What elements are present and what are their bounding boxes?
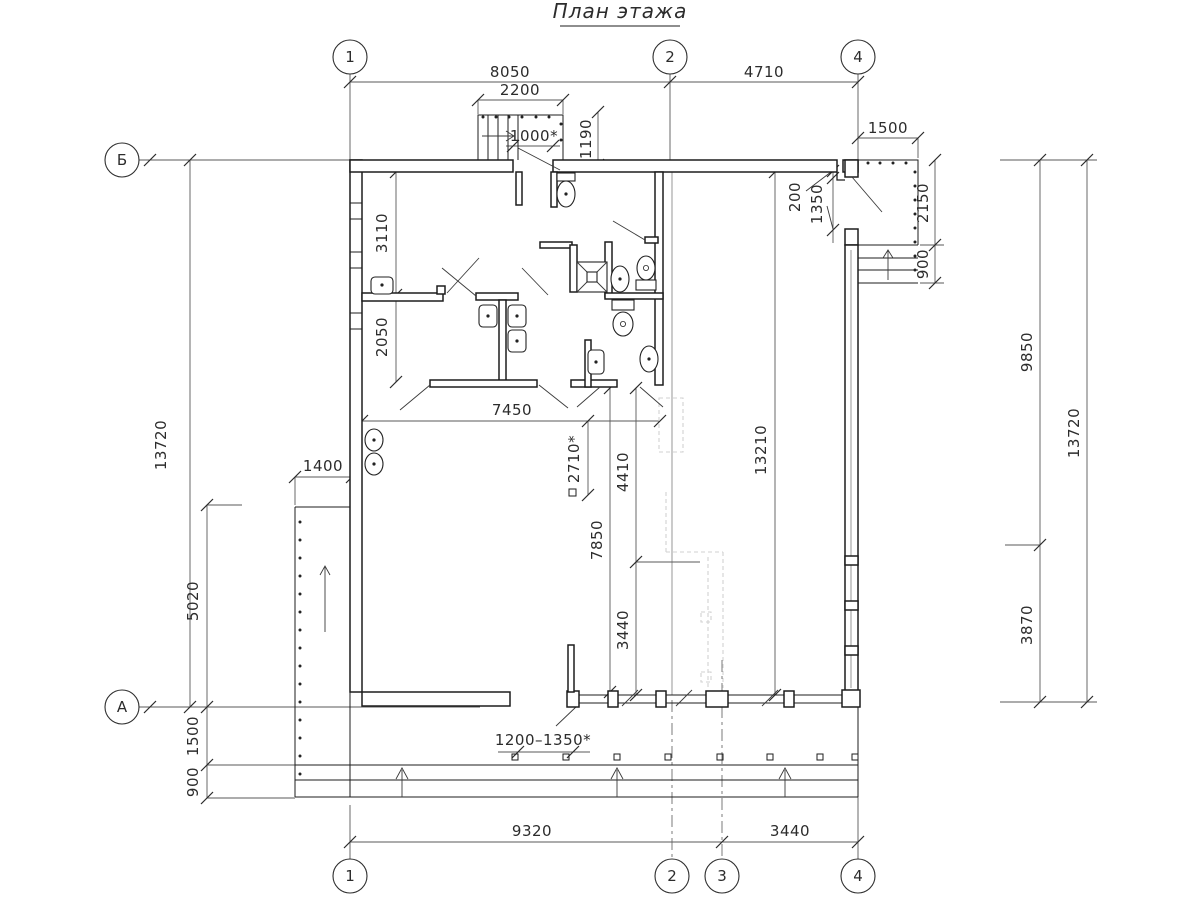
walls xyxy=(350,160,860,707)
dim-1190: 1190 xyxy=(577,119,595,159)
page-title: План этажа xyxy=(553,0,688,23)
dim-5020: 5020 xyxy=(184,581,202,621)
drawing-sheet: План этажа 8050 4710 2200 1000* 1190 150… xyxy=(0,0,1200,900)
right-wall-top xyxy=(845,160,858,177)
axis-label: 1 xyxy=(345,48,355,66)
dim-200: 200 xyxy=(786,182,804,212)
sink-symbol xyxy=(371,277,393,294)
dim-3870: 3870 xyxy=(1018,605,1036,645)
axis-label: 2 xyxy=(667,867,677,885)
dim-3110: 3110 xyxy=(373,213,391,253)
axis-bubble-top-1: 1 xyxy=(333,40,367,74)
fixtures xyxy=(365,173,658,475)
dim-1350: 1350 xyxy=(808,184,826,224)
dim-13720-right: 13720 xyxy=(1065,408,1083,458)
dim-9320: 9320 xyxy=(512,822,552,840)
dim-3440-int: 3440 xyxy=(614,610,632,650)
dim-2050: 2050 xyxy=(373,317,391,357)
axis-bubble-top-2: 2 xyxy=(653,40,687,74)
toilet-symbol xyxy=(557,173,575,207)
dim-7450: 7450 xyxy=(492,401,532,419)
dim-2150: 2150 xyxy=(914,183,932,223)
axis-label: 2 xyxy=(665,48,675,66)
axis-label: А xyxy=(117,698,128,716)
axis-bubble-bottom-3: 3 xyxy=(705,859,739,893)
dim-13720-left: 13720 xyxy=(152,420,170,470)
dim-3440-bottom: 3440 xyxy=(770,822,810,840)
axis-label: 3 xyxy=(717,867,727,885)
dim-4710: 4710 xyxy=(744,63,784,81)
bottom-wall-left xyxy=(362,692,510,706)
sink-symbol xyxy=(640,346,658,372)
dim-900-left: 900 xyxy=(184,767,202,797)
dim-2710: 2710* xyxy=(565,435,583,483)
stair-direction-arrow xyxy=(883,250,893,280)
axis-bubble-bottom-4: 4 xyxy=(841,859,875,893)
axis-label: Б xyxy=(117,151,127,169)
toilet-symbol xyxy=(636,256,656,290)
terrace-posts xyxy=(512,754,858,760)
top-wall-right xyxy=(553,160,837,172)
dim-2200: 2200 xyxy=(500,81,540,99)
shower-symbol xyxy=(577,262,607,292)
stair-direction-arrow xyxy=(396,768,791,797)
side-porch xyxy=(858,160,918,283)
dim-900-right: 900 xyxy=(914,249,932,279)
dim-1000: 1000* xyxy=(510,127,558,145)
sink-symbol xyxy=(479,305,497,327)
axis-label: 1 xyxy=(345,867,355,885)
dim-1500-left: 1500 xyxy=(184,716,202,756)
toilet-symbol xyxy=(612,300,634,336)
ramp xyxy=(295,507,350,797)
dim-8050: 8050 xyxy=(490,63,530,81)
axis-bubble-left-a: А xyxy=(105,690,139,724)
dim-4410: 4410 xyxy=(614,452,632,492)
axis-label: 4 xyxy=(853,48,863,66)
dashed-projection xyxy=(659,398,723,688)
right-window-wall xyxy=(845,245,858,692)
dim-1500-right: 1500 xyxy=(868,119,908,137)
labels: План этажа 8050 4710 2200 1000* 1190 150… xyxy=(152,0,1083,840)
sink-symbol xyxy=(508,330,526,352)
dim-9850: 9850 xyxy=(1018,332,1036,372)
corner-post xyxy=(842,690,860,707)
axis-bubble-bottom-2: 2 xyxy=(655,859,689,893)
top-wall-left xyxy=(350,160,513,172)
sink-symbol xyxy=(508,305,526,327)
axis-label: 4 xyxy=(853,867,863,885)
axis-bubble-bottom-1: 1 xyxy=(333,859,367,893)
axis-bubble-left-b: Б xyxy=(105,143,139,177)
ramp-direction-arrow xyxy=(320,566,330,632)
left-wall xyxy=(350,160,362,692)
dim-13210: 13210 xyxy=(752,425,770,475)
dim-1200-1350: 1200–1350* xyxy=(495,731,591,749)
sink-symbol xyxy=(588,350,604,374)
dim-1400: 1400 xyxy=(303,457,343,475)
axis-bubble-top-4: 4 xyxy=(841,40,875,74)
dim-7850: 7850 xyxy=(588,520,606,560)
fountain-symbol xyxy=(365,429,383,475)
floor-plan-canvas: План этажа 8050 4710 2200 1000* 1190 150… xyxy=(0,0,1200,900)
sink-symbol xyxy=(611,266,629,292)
